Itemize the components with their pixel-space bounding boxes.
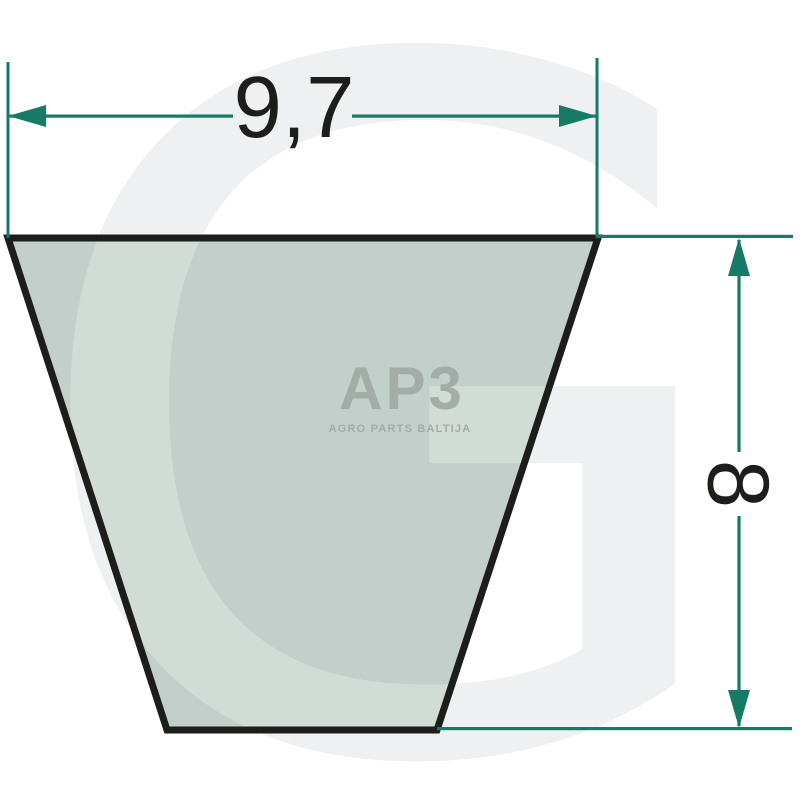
apb-logo-tagline: AGRO PARTS BALTIJA [329,423,472,435]
height-extension-line-top [597,235,793,238]
width-extension-line-left [7,62,10,238]
height-dimension-label: 8 [690,460,787,508]
apb-logo: AP3 AGRO PARTS BALTIJA [329,355,472,435]
apb-logo-acronym: AP3 [339,355,465,422]
height-extension-line-bottom [437,727,792,730]
width-dimension-label: 9,7 [234,59,355,156]
diagram-canvas: G G AP3 AGRO PARTS BALTIJA 9,7 8 [0,0,800,800]
width-extension-line-right [596,58,599,238]
belt-dimension-diagram: G G AP3 AGRO PARTS BALTIJA 9,7 8 [0,0,800,800]
